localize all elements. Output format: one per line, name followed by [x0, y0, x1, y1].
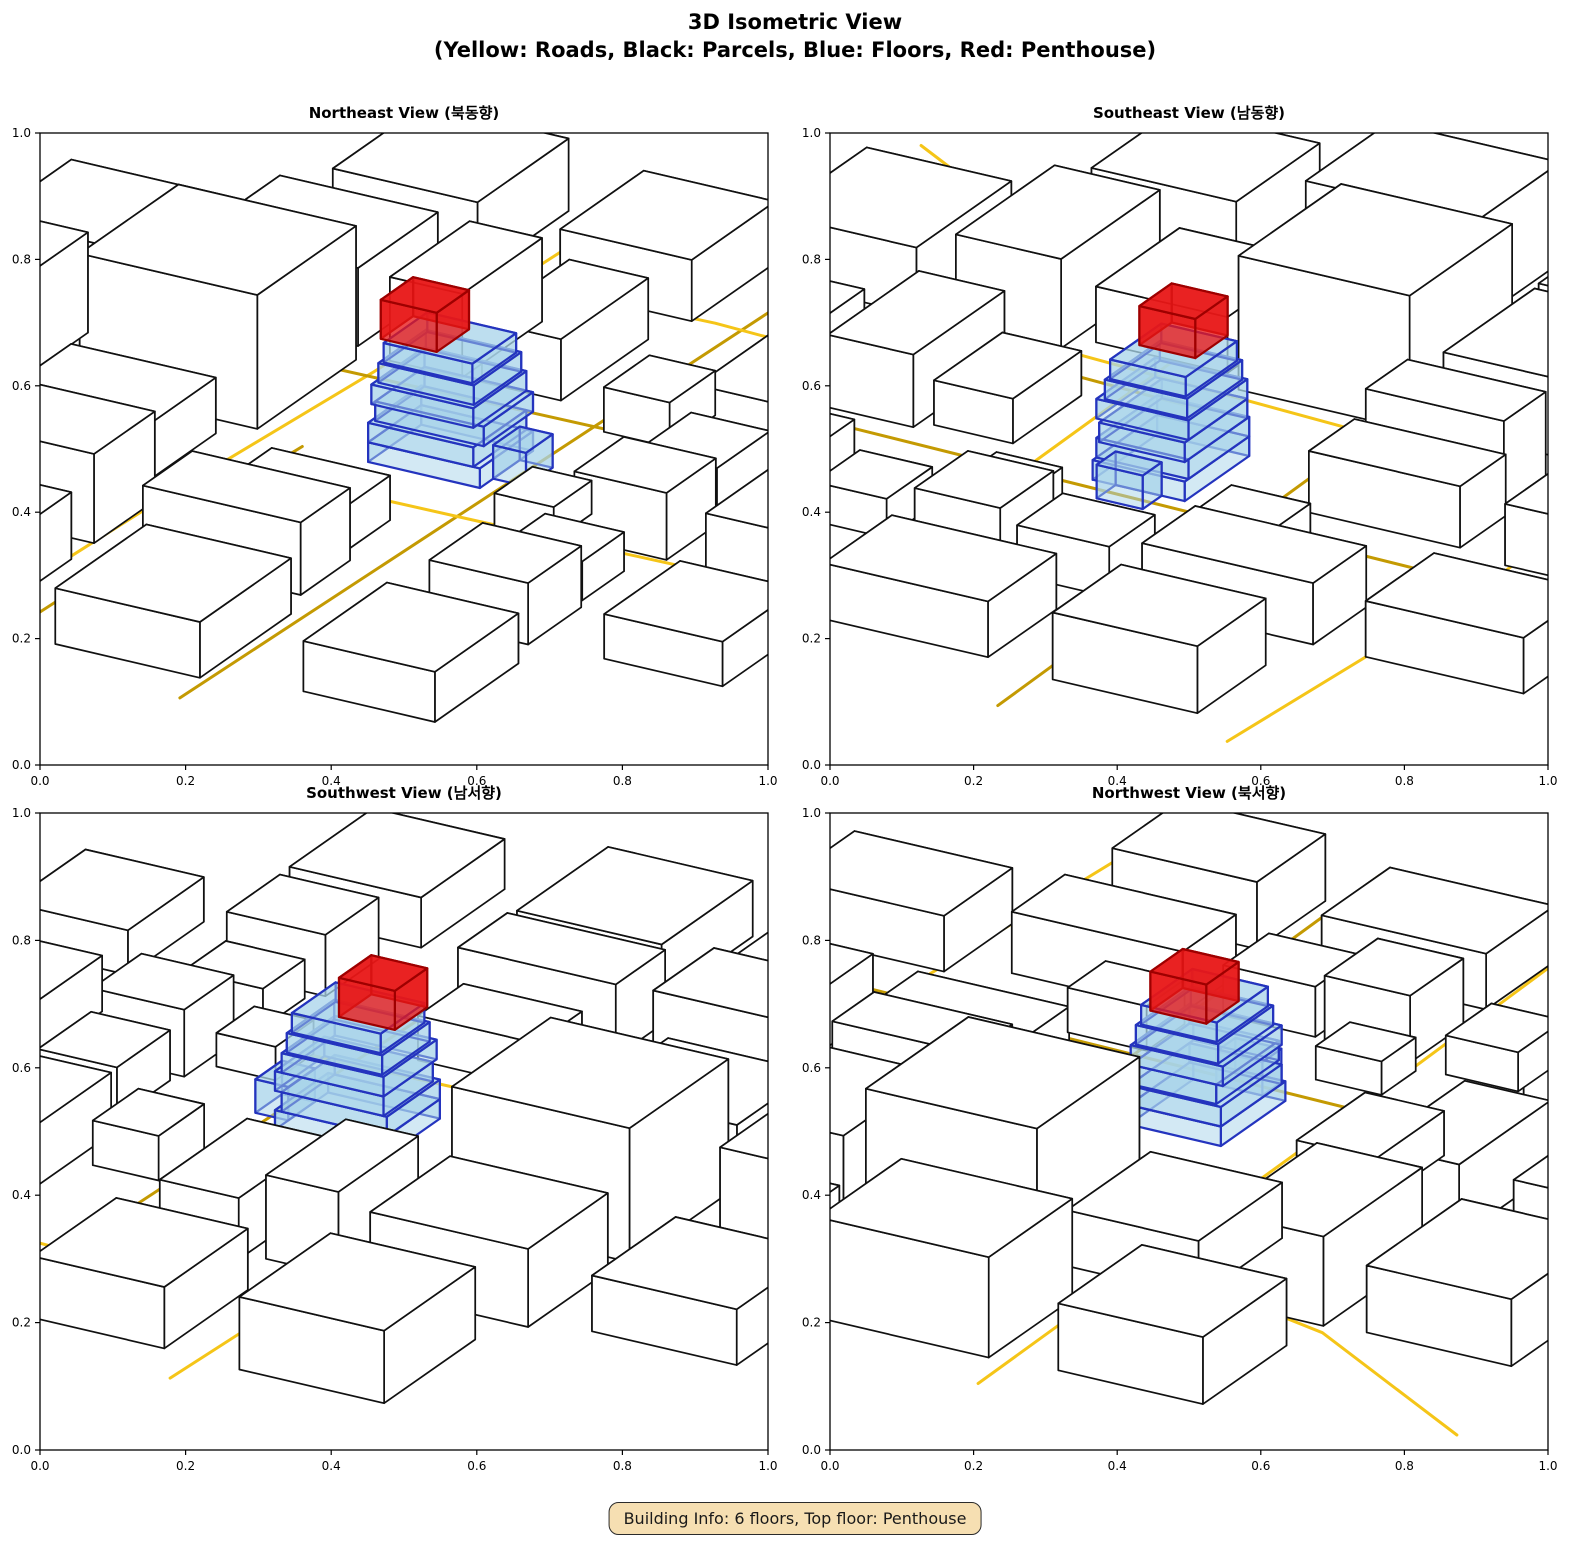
parcel-box-side-face: [0, 995, 7, 1078]
subplot-northwest: 0.00.00.20.20.40.40.60.60.80.81.01.0: [795, 805, 1590, 1495]
figure-title-line1: 3D Isometric View: [0, 8, 1590, 36]
parcel-box-side-face: [795, 973, 797, 1068]
y-tick-label: 0.0: [12, 758, 31, 772]
y-tick-label: 0.8: [802, 933, 821, 947]
parcels-and-building-layer: [0, 125, 795, 722]
x-tick-label: 0.8: [613, 774, 632, 788]
parcels-and-building-layer: [795, 125, 1590, 713]
x-tick-label: 0.4: [322, 774, 341, 788]
parcel-box-side-face: [1576, 975, 1590, 1050]
subplot-southwest: 0.00.00.20.20.40.40.60.60.80.81.01.0: [0, 805, 795, 1495]
y-tick-label: 0.2: [12, 1316, 31, 1330]
x-tick-label: 0.0: [30, 1459, 49, 1473]
y-tick-label: 1.0: [802, 806, 821, 820]
scene-ne: [0, 125, 795, 722]
x-tick-label: 1.0: [758, 774, 777, 788]
x-tick-label: 0.2: [176, 1459, 195, 1473]
subplot-title-northeast: Northeast View (북동향): [40, 102, 768, 122]
y-tick-label: 0.4: [802, 505, 821, 519]
y-tick-label: 0.4: [12, 1188, 31, 1202]
parcel-box-side-face: [1581, 451, 1590, 546]
parcel-box-side-face: [1576, 927, 1590, 1020]
y-tick-label: 0.2: [802, 632, 821, 646]
figure: 3D Isometric View (Yellow: Roads, Black:…: [0, 0, 1590, 1560]
parcel-box-side-face: [795, 1040, 796, 1182]
parcels-and-building-layer: [795, 805, 1590, 1404]
scene-nw: [795, 805, 1590, 1435]
parcel-box-side-face: [0, 1147, 8, 1230]
building-info-badge: Building Info: 6 floors, Top floor: Pent…: [609, 1502, 982, 1535]
x-tick-label: 1.0: [1538, 1459, 1557, 1473]
y-tick-label: 0.6: [802, 379, 821, 393]
x-tick-label: 0.8: [1395, 774, 1414, 788]
y-tick-label: 0.8: [12, 933, 31, 947]
parcel-box-side-face: [795, 485, 802, 560]
y-tick-label: 1.0: [12, 126, 31, 140]
y-tick-label: 1.0: [802, 126, 821, 140]
x-tick-label: 0.0: [820, 1459, 839, 1473]
parcels-and-building-layer: [0, 808, 795, 1403]
parcel-box-top-face: [0, 1147, 8, 1238]
x-tick-label: 0.4: [1108, 1459, 1127, 1473]
y-tick-label: 0.8: [802, 252, 821, 266]
parcel-box-side-face: [0, 1120, 12, 1203]
x-tick-label: 1.0: [1538, 774, 1557, 788]
x-tick-label: 0.2: [964, 774, 983, 788]
parcel-box-top-face: [795, 485, 802, 564]
y-tick-label: 0.0: [802, 758, 821, 772]
y-tick-label: 0.2: [12, 632, 31, 646]
y-tick-label: 0.4: [802, 1188, 821, 1202]
y-tick-label: 0.4: [12, 505, 31, 519]
scene-sw: [0, 808, 795, 1403]
parcel-box-side-face: [1582, 321, 1590, 463]
subplot-title-southeast: Southeast View (남동향): [830, 102, 1548, 122]
x-tick-label: 0.8: [613, 1459, 632, 1473]
y-tick-label: 0.0: [12, 1443, 31, 1457]
x-tick-label: 0.0: [30, 774, 49, 788]
x-tick-label: 1.0: [758, 1459, 777, 1473]
x-tick-label: 0.2: [964, 1459, 983, 1473]
y-tick-label: 0.6: [12, 1061, 31, 1075]
parcel-box-top-face: [1576, 927, 1590, 1006]
x-tick-label: 0.6: [1251, 1459, 1270, 1473]
x-tick-label: 0.4: [1108, 774, 1127, 788]
parcel-box-side-face: [0, 1175, 8, 1295]
y-tick-label: 0.6: [802, 1061, 821, 1075]
x-tick-label: 0.8: [1395, 1459, 1414, 1473]
subplot-southeast: 0.00.00.20.20.40.40.60.60.80.81.01.0: [795, 125, 1590, 815]
x-tick-label: 0.0: [820, 774, 839, 788]
x-tick-label: 0.2: [176, 774, 195, 788]
x-tick-label: 0.6: [1251, 774, 1270, 788]
subplot-northeast: 0.00.00.20.20.40.40.60.60.80.81.01.0: [0, 125, 795, 815]
x-tick-label: 0.4: [322, 1459, 341, 1473]
y-tick-label: 0.0: [802, 1443, 821, 1457]
parcel-box-side-face: [795, 438, 797, 521]
y-tick-label: 1.0: [12, 806, 31, 820]
parcel-box-side-face: [1581, 999, 1590, 1082]
y-tick-label: 0.6: [12, 379, 31, 393]
y-tick-label: 0.8: [12, 252, 31, 266]
x-tick-label: 0.6: [467, 774, 486, 788]
parcel-box-side-face: [795, 516, 802, 608]
figure-title-line2: (Yellow: Roads, Black: Parcels, Blue: Fl…: [0, 36, 1590, 64]
y-tick-label: 0.2: [802, 1316, 821, 1330]
x-tick-label: 0.6: [467, 1459, 486, 1473]
